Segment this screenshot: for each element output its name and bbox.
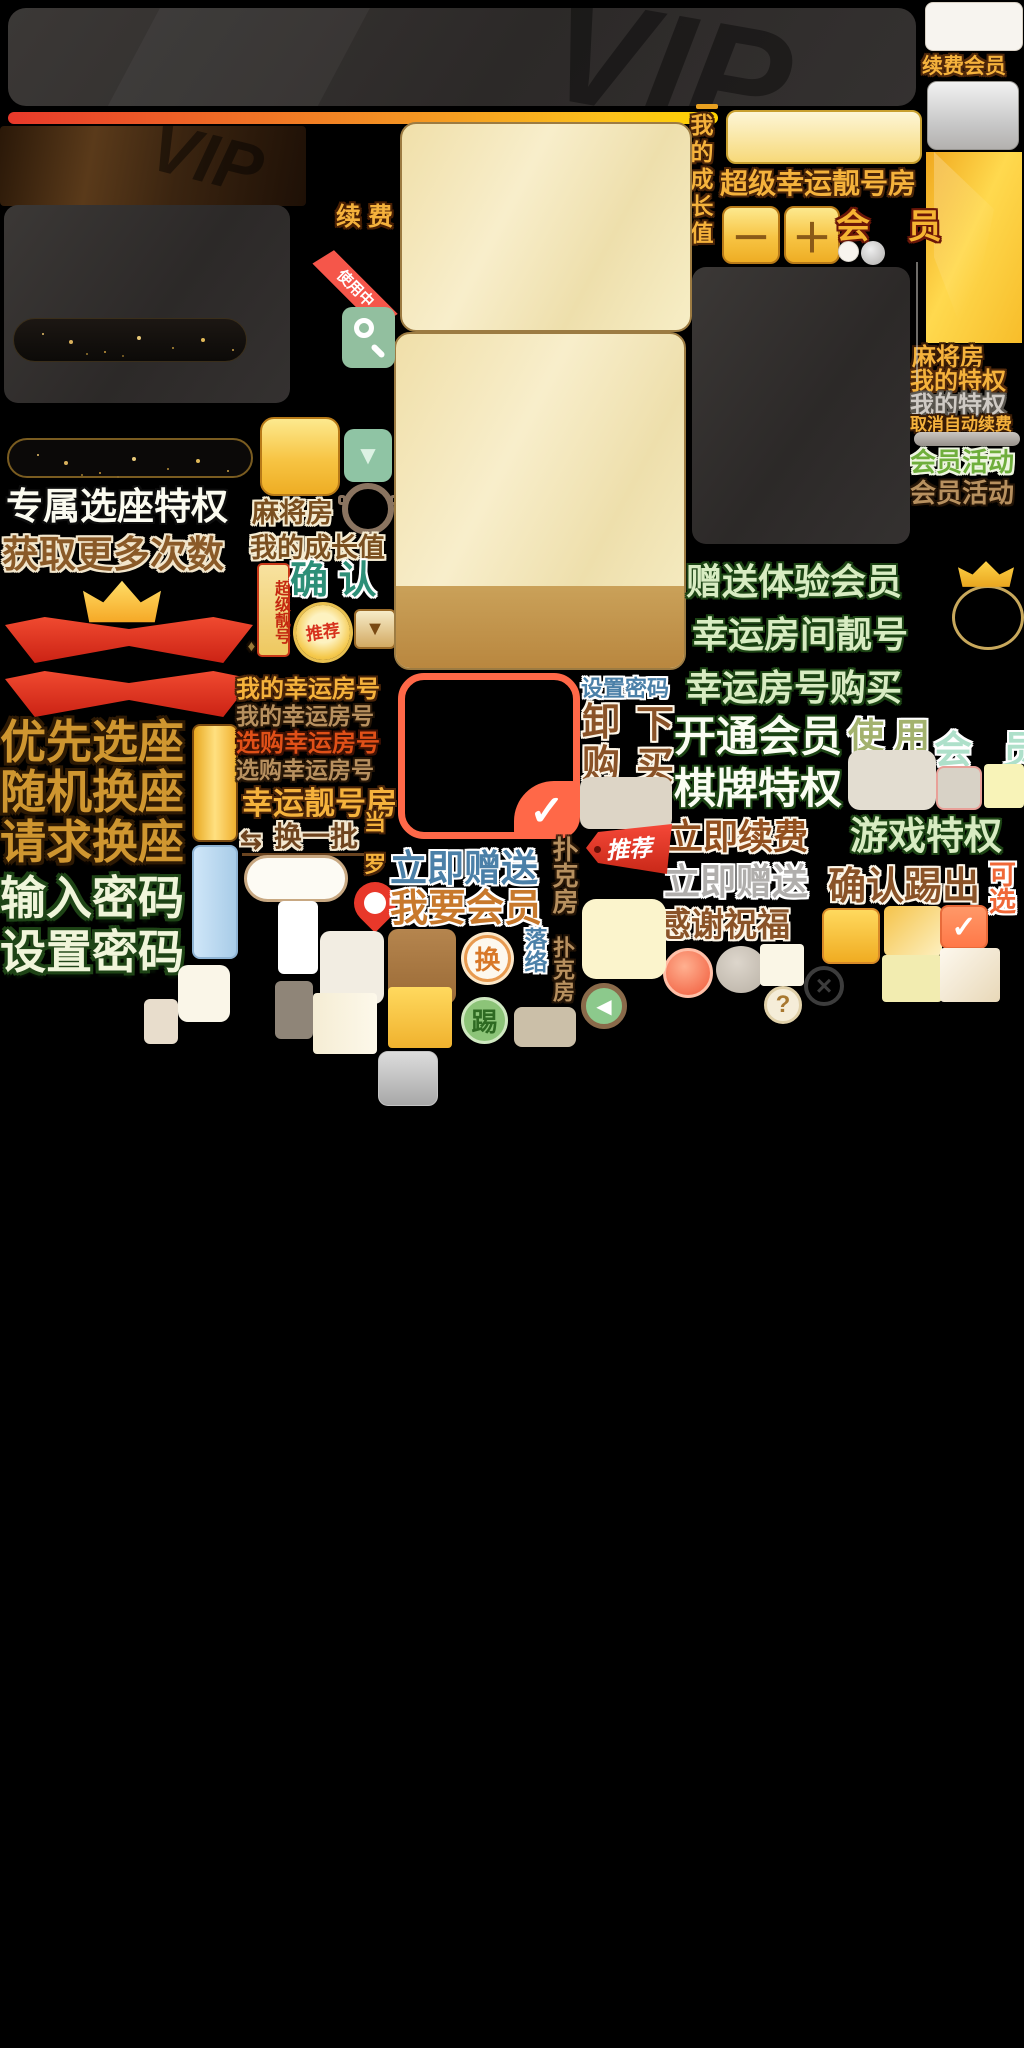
minus-button[interactable]: － xyxy=(722,206,780,264)
recommend-ribbon-tag: 推荐 xyxy=(586,824,672,874)
white-dot xyxy=(838,241,859,262)
my-growth-label-mid: 我的成长值 xyxy=(250,535,385,562)
minus-icon: － xyxy=(731,206,771,264)
silver-dot xyxy=(861,241,885,265)
gold-gradient-square[interactable] xyxy=(884,906,942,956)
confirm-kick-label: 确认踢出 xyxy=(828,868,980,906)
bronze-vip-watermark: VIP xyxy=(142,126,271,206)
help-badge[interactable]: ? xyxy=(764,986,802,1024)
circle-nub-left xyxy=(338,495,346,505)
light-gold-button[interactable] xyxy=(726,110,922,164)
selection-check-corner: ✓ xyxy=(514,781,580,839)
blue-vertical-chars: 落络 xyxy=(522,927,545,991)
crown-icon xyxy=(83,579,161,624)
mahjong-room-label-right: 麻将房 xyxy=(912,346,984,370)
poker-room-vertical-2: 扑克房 xyxy=(551,936,573,1012)
gold-dust xyxy=(37,454,39,456)
enter-password-label: 输入密码 xyxy=(0,875,184,921)
renew-vip-button[interactable] xyxy=(925,2,1023,51)
optional-vertical-label: 可选 xyxy=(986,860,1013,928)
pale-yellow-square[interactable] xyxy=(984,764,1024,808)
orange-selection-frame[interactable]: ✓ xyxy=(398,673,580,839)
plus-icon: ＋ xyxy=(792,206,832,264)
sprite-atlas-canvas: VIP 续费会员 麻将房 我的特权 我的特权 取消自动续费 会员活动 会员活动 … xyxy=(0,0,1024,2048)
pale-cream-square[interactable] xyxy=(313,993,377,1054)
ribbon-dot xyxy=(594,846,601,853)
banner-sheen xyxy=(85,8,380,106)
swap-coin-button[interactable]: 换 xyxy=(464,935,511,982)
blue-vertical-bar[interactable] xyxy=(192,845,238,959)
vip-activity-tan-label: 会员活动 xyxy=(910,480,1014,506)
thin-divider-line xyxy=(916,262,918,382)
poker-room-vertical-1: 扑克房 xyxy=(551,836,577,936)
swap-coin-label: 换 xyxy=(474,940,500,977)
recommend-ribbon-label: 推荐 xyxy=(605,836,652,862)
get-more-times-label: 获取更多次数 xyxy=(2,536,224,573)
unload-char: 卸 xyxy=(582,704,620,742)
dropdown-teal-button[interactable]: ▼ xyxy=(344,429,392,482)
kick-coin-button[interactable]: 踢 xyxy=(461,997,508,1044)
renew-vip-label: 续费会员 xyxy=(922,56,1006,77)
my-lucky-room-gold-label: 我的幸运房号 xyxy=(236,678,380,702)
silver-button[interactable] xyxy=(927,81,1019,150)
exclusive-seat-label: 专属选座特权 xyxy=(6,488,228,525)
set-password-blue-label: 设置密码 xyxy=(581,678,669,700)
crown-circle-outline xyxy=(952,585,1024,650)
search-icon xyxy=(354,318,374,338)
plus-button[interactable]: ＋ xyxy=(784,206,840,264)
open-vip-label: 开通会员 xyxy=(674,716,842,758)
left-arrow-icon: ◀ xyxy=(596,994,611,1019)
cream-gradient-square[interactable] xyxy=(940,948,1000,1002)
beige-button-2[interactable] xyxy=(580,777,672,829)
white-pill-button[interactable] xyxy=(244,855,348,902)
gold-dust xyxy=(42,333,44,335)
gift-trial-vip-label: 赠送体验会员 xyxy=(686,564,902,600)
gold-dash xyxy=(696,104,718,109)
recommend-badge-label: 推荐 xyxy=(305,622,341,644)
check-icon: ✓ xyxy=(951,910,976,945)
circle-outline-icon xyxy=(342,483,394,535)
pink-border-square[interactable] xyxy=(936,766,982,810)
white-square[interactable] xyxy=(278,901,318,974)
check-icon: ✓ xyxy=(529,786,564,835)
crown-icon-small xyxy=(958,560,1014,588)
gold-square-small[interactable] xyxy=(822,908,880,964)
taupe-square[interactable] xyxy=(275,981,313,1039)
renew-now-label: 立即续费 xyxy=(668,820,808,855)
lucky-room-buy-label: 幸运房号购买 xyxy=(686,670,902,706)
dropdown-gold-button[interactable]: ▼ xyxy=(354,609,396,649)
super-lucky-room-label: 超级幸运靓号房 xyxy=(720,170,916,198)
bronze-texture-banner: VIP xyxy=(0,126,306,206)
search-icon-handle xyxy=(370,343,386,359)
silver-square[interactable] xyxy=(378,1051,438,1106)
gold-gradient-square-2[interactable] xyxy=(388,987,452,1048)
back-arrow-button[interactable]: ◀ xyxy=(581,983,627,1029)
search-button[interactable] xyxy=(342,307,395,368)
mahjong-room-label-mid: 麻将房 xyxy=(252,500,333,527)
cream-square-left[interactable] xyxy=(178,965,230,1022)
set-password-label: 设置密码 xyxy=(0,929,184,975)
cream-square-right[interactable] xyxy=(760,944,804,986)
dark-panel-right xyxy=(692,267,910,544)
refresh-swap-icon[interactable]: ⇆ xyxy=(240,826,262,852)
salmon-circle-button[interactable] xyxy=(663,948,713,998)
recommend-badge[interactable]: 推荐 xyxy=(296,605,350,660)
super-nick-ribbon: 超级靓号 xyxy=(257,563,290,657)
chevron-down-icon: ▼ xyxy=(365,618,385,641)
confirm-label: 确 认 xyxy=(290,562,377,600)
in-use-label: 使用中 xyxy=(334,268,376,310)
gold-facet xyxy=(934,152,994,343)
chevron-down-icon: ▼ xyxy=(355,440,381,471)
gold-char-2: 罗 xyxy=(364,854,386,876)
random-seat-label: 随机换座 xyxy=(0,769,184,815)
want-vip-label: 我要会员 xyxy=(390,890,542,928)
greige-square[interactable] xyxy=(514,1007,576,1047)
question-icon: ? xyxy=(776,991,791,1019)
gold-char-1: 当 xyxy=(364,812,386,834)
checkbox-checked[interactable]: ✓ xyxy=(940,905,988,949)
cream-panel-a xyxy=(400,122,692,332)
cream-big-button[interactable] xyxy=(582,899,666,979)
change-batch-label[interactable]: 换一批 xyxy=(274,823,358,851)
board-privilege-label: 棋牌特权 xyxy=(674,768,842,810)
my-lucky-room-tan-label: 我的幸运房号 xyxy=(236,705,374,728)
down-char: 下 xyxy=(636,706,674,744)
small-diamond-icon: ♦ xyxy=(244,638,259,655)
red-ribbon-banner-1 xyxy=(5,617,253,667)
game-privilege-label: 游戏特权 xyxy=(850,818,1002,856)
thanks-bless-label: 感谢祝福 xyxy=(658,908,790,941)
buy-lucky-room-red-label: 选购幸运房号 xyxy=(236,732,380,756)
my-privilege-gold-label: 我的特权 xyxy=(910,370,1006,394)
panel-b-bottom-strip xyxy=(396,586,684,668)
cream-panel-b xyxy=(394,332,686,670)
cancel-auto-renew-label: 取消自动续费 xyxy=(910,416,1012,433)
top-banner-panel: VIP xyxy=(8,8,916,106)
lucky-room-nick-label: 幸运房间靓号 xyxy=(692,617,908,653)
beige-button[interactable] xyxy=(848,750,936,810)
gold-square-button[interactable] xyxy=(260,417,340,496)
request-seat-label: 请求换座 xyxy=(0,819,184,865)
gold-panel-right[interactable] xyxy=(926,152,1022,343)
gray-pill xyxy=(914,432,1020,446)
gift-now-blue-label: 立即赠送 xyxy=(390,850,538,887)
red-ribbon-banner-2 xyxy=(5,671,253,721)
vip-watermark: VIP xyxy=(535,8,803,106)
sparkle-oval-gold-rim[interactable] xyxy=(7,438,253,478)
beige-square-small[interactable] xyxy=(144,999,178,1044)
pale-yellow-square-2[interactable] xyxy=(882,955,942,1002)
vip-activity-green-label: 会员活动 xyxy=(910,449,1014,475)
kick-coin-label: 踢 xyxy=(471,1002,497,1039)
greige-circle-button[interactable] xyxy=(716,946,766,993)
gift-now-silver-label: 立即赠送 xyxy=(664,864,808,900)
sparkle-oval-dark[interactable] xyxy=(13,318,247,362)
use-label: 使 用 xyxy=(848,718,930,754)
priority-seat-label: 优先选座 xyxy=(0,719,184,765)
pin-hole xyxy=(359,887,390,918)
renew-label: 续 费 xyxy=(336,205,393,230)
buy-lucky-room-tan-label: 选购幸运房号 xyxy=(236,759,374,782)
vip-gold-label: 会 员 xyxy=(836,210,955,244)
dark-panel-left xyxy=(4,205,290,403)
close-circle-icon[interactable]: × xyxy=(804,966,844,1006)
close-icon: × xyxy=(816,970,832,1002)
gold-vertical-bar[interactable] xyxy=(192,724,238,842)
